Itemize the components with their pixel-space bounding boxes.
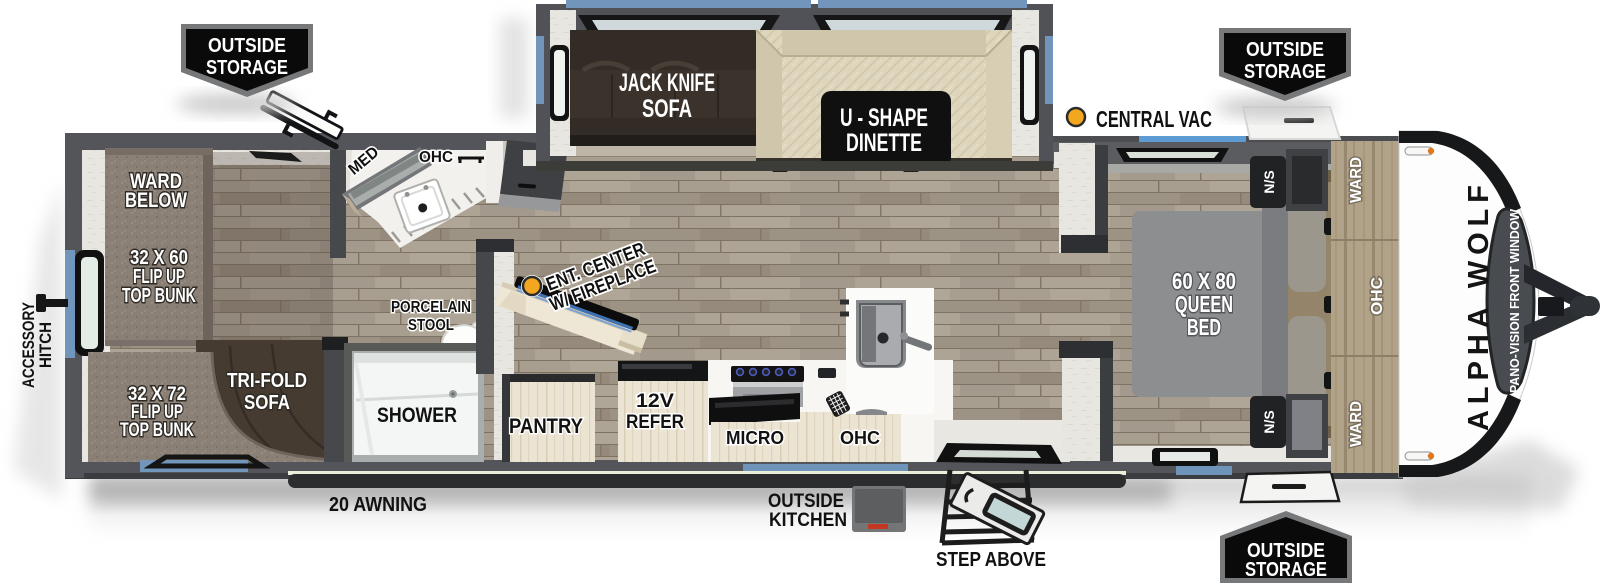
svg-text:STORAGE: STORAGE (1245, 559, 1327, 581)
svg-text:TRI-FOLD: TRI-FOLD (227, 370, 307, 392)
svg-text:BED: BED (1187, 314, 1221, 340)
svg-text:REFER: REFER (626, 412, 684, 433)
svg-text:MICRO: MICRO (726, 428, 784, 448)
svg-text:U - SHAPE: U - SHAPE (840, 104, 928, 132)
svg-text:SOFA: SOFA (642, 95, 692, 123)
svg-text:20 AWNING: 20 AWNING (329, 494, 427, 516)
svg-text:BELOW: BELOW (125, 189, 187, 212)
svg-text:TOP BUNK: TOP BUNK (120, 420, 194, 441)
svg-text:ALPHA WOLF: ALPHA WOLF (1463, 179, 1495, 431)
svg-text:SHOWER: SHOWER (377, 404, 457, 427)
svg-text:OUTSIDE: OUTSIDE (768, 491, 844, 512)
svg-text:CENTRAL VAC: CENTRAL VAC (1096, 106, 1212, 132)
svg-text:OHC: OHC (419, 149, 453, 166)
svg-text:HITCH: HITCH (36, 322, 55, 368)
svg-text:STORAGE: STORAGE (206, 57, 288, 79)
svg-text:PANO-VISION FRONT WINDOW: PANO-VISION FRONT WINDOW (1507, 208, 1522, 393)
svg-text:N/S: N/S (1261, 410, 1277, 433)
svg-text:12V: 12V (636, 391, 674, 412)
svg-text:PORCELAIN: PORCELAIN (391, 299, 471, 316)
svg-text:STOOL: STOOL (408, 317, 454, 334)
svg-text:KITCHEN: KITCHEN (769, 510, 847, 531)
svg-text:STORAGE: STORAGE (1244, 61, 1326, 83)
svg-text:PANTRY: PANTRY (509, 415, 583, 438)
svg-text:N/S: N/S (1261, 170, 1277, 193)
svg-text:OUTSIDE: OUTSIDE (208, 35, 286, 57)
svg-text:STEP ABOVE: STEP ABOVE (936, 549, 1046, 571)
svg-text:SOFA: SOFA (244, 392, 290, 414)
svg-text:WARD: WARD (1348, 401, 1365, 447)
svg-text:TOP BUNK: TOP BUNK (122, 285, 196, 307)
svg-text:DINETTE: DINETTE (846, 129, 922, 157)
svg-text:OUTSIDE: OUTSIDE (1246, 39, 1324, 61)
svg-text:OHC: OHC (840, 428, 880, 448)
svg-text:JACK KNIFE: JACK KNIFE (619, 69, 715, 97)
svg-text:WARD: WARD (1348, 157, 1365, 203)
svg-text:OHC: OHC (1369, 277, 1386, 315)
